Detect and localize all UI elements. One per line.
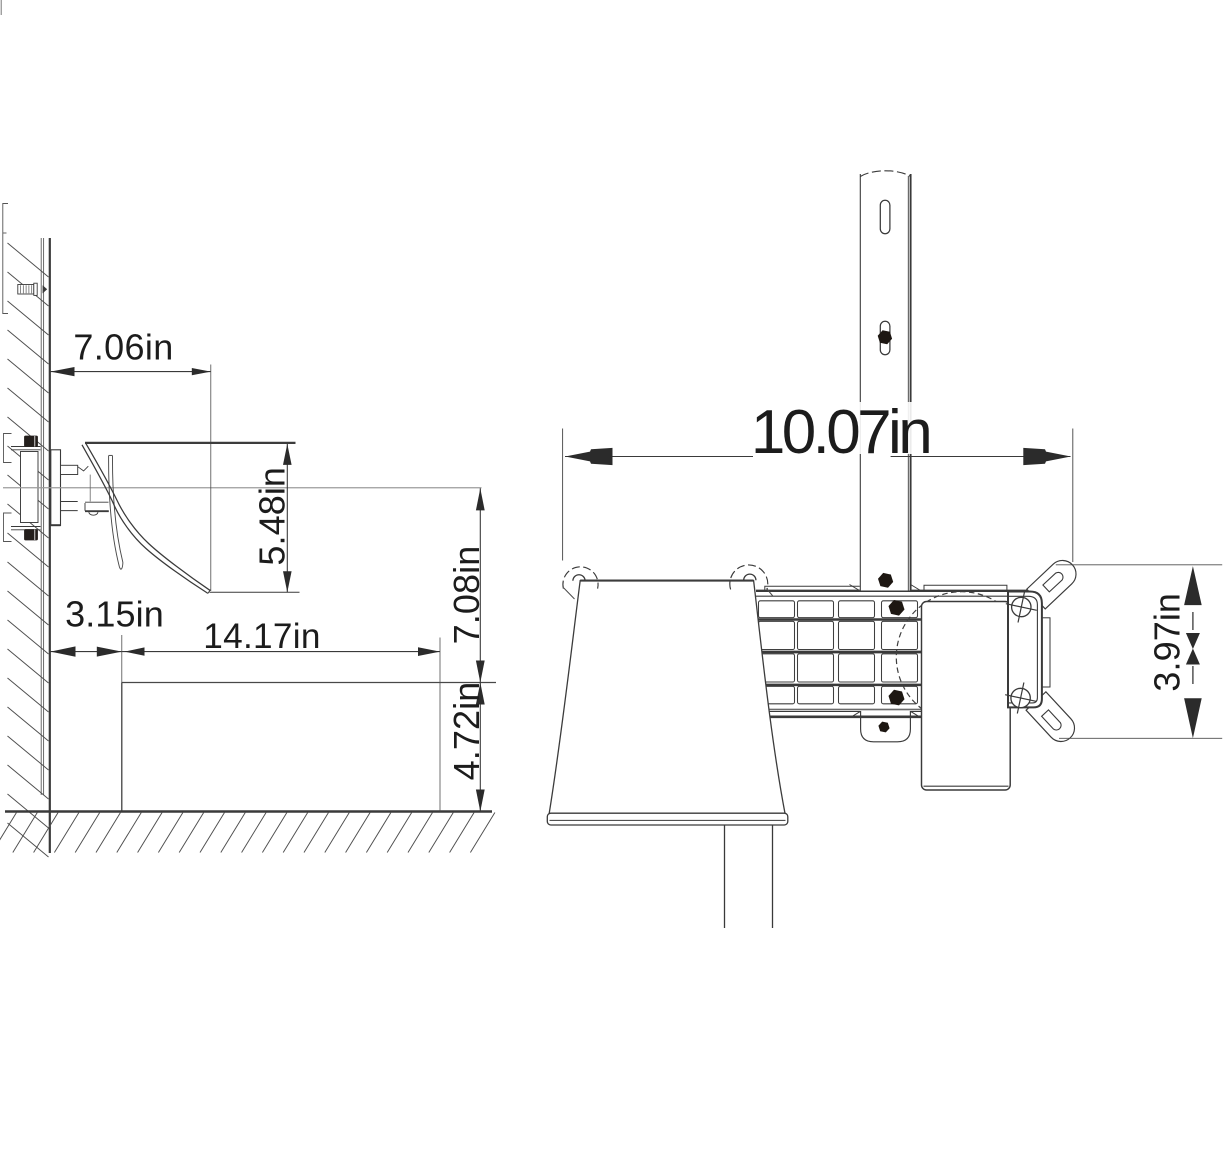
svg-text:7.08in: 7.08in: [446, 546, 487, 645]
svg-text:3.97in: 3.97in: [1147, 593, 1188, 692]
svg-text:14.17in: 14.17in: [203, 617, 321, 656]
svg-text:3.15in: 3.15in: [65, 593, 164, 634]
svg-text:4.72in: 4.72in: [446, 682, 487, 781]
svg-text:5.48in: 5.48in: [252, 467, 293, 566]
svg-text:7.06in: 7.06in: [73, 327, 173, 368]
svg-text:10.07in: 10.07in: [751, 398, 929, 467]
